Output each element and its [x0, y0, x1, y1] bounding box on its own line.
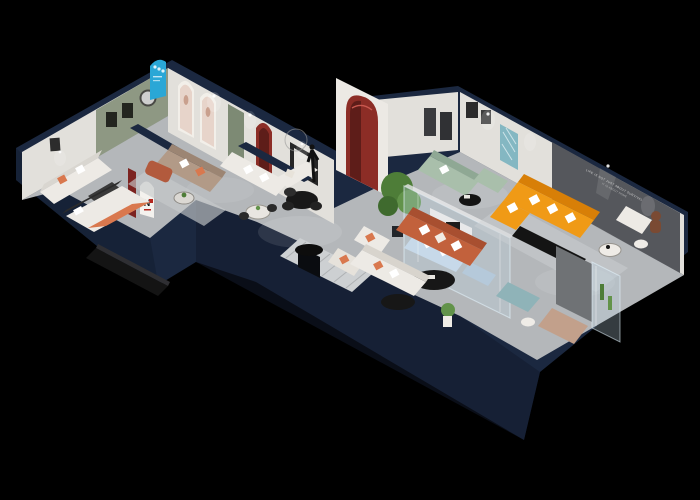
small-white-table	[521, 318, 535, 327]
frame	[106, 112, 117, 127]
showroom-render: LIFE IS NOT JUST ABOUT SURVIVAL IT IS AB…	[0, 0, 700, 500]
chair	[267, 204, 277, 212]
chair	[284, 188, 296, 197]
glass-display-case	[592, 262, 620, 342]
logo-red-mark	[149, 199, 153, 203]
side-table	[634, 240, 648, 249]
blue-arch-poster	[150, 60, 166, 100]
floorplan-svg: LIFE IS NOT JUST ABOUT SURVIVAL IT IS AB…	[0, 0, 700, 500]
logo-red-bar	[144, 209, 151, 211]
table-plant	[182, 193, 187, 198]
cactus	[600, 284, 604, 300]
table-decor	[464, 195, 470, 199]
frame	[50, 138, 61, 152]
round-white-table	[599, 244, 621, 257]
table-decor	[606, 245, 610, 249]
chair	[239, 212, 249, 220]
chair	[282, 202, 294, 211]
poster-arch	[178, 81, 194, 138]
frame	[122, 103, 133, 118]
teddy-bear-body	[650, 220, 661, 233]
oval-table-small	[381, 294, 415, 310]
coffee-table-round	[174, 192, 194, 204]
table-plant	[256, 206, 260, 210]
frame	[466, 102, 478, 118]
cactus	[608, 296, 612, 310]
teddy-bear-head	[651, 211, 661, 221]
chair	[310, 202, 322, 211]
wardrobe-panel	[440, 112, 452, 140]
wardrobe-panel	[424, 108, 436, 136]
